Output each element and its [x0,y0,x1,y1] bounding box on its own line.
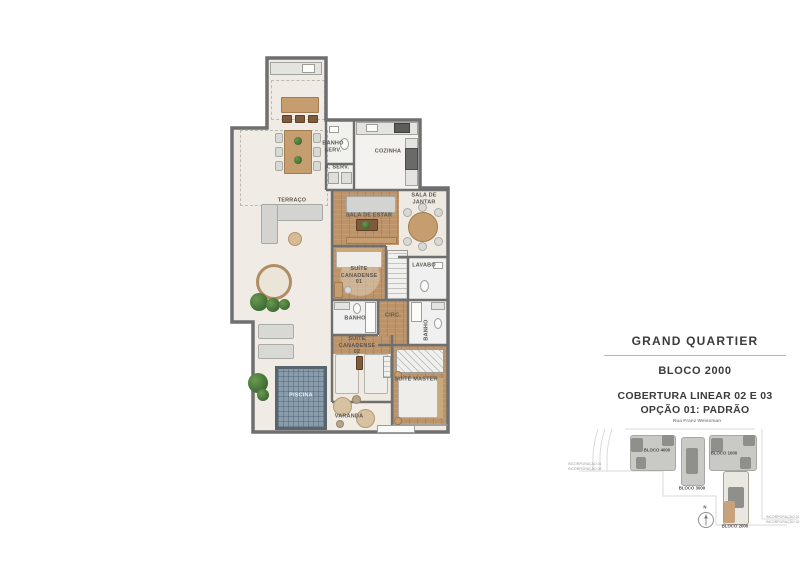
page: TERRAÇO BANHO SERV. COZINHA A. SERV. SAL… [0,0,800,561]
building-core-highlight [724,501,735,523]
table-plant [294,156,302,164]
room-label-a-serv: A. SERV. [325,165,350,172]
room-label-piscina: PISCINA [289,393,313,400]
room-label-suite-master: SUÍTE MASTER [394,377,437,384]
headboard-suite-01 [336,248,382,252]
dining-chair [434,237,443,246]
dining-chair [275,147,283,157]
gourmet-sink [302,64,315,73]
building-label-bloco-4000: BLOCO 4000 [644,449,670,453]
dining-chair [434,208,443,217]
room-label-terraco: TERRAÇO [278,198,307,205]
varanda-side-table [336,420,344,428]
title-block: GRAND QUARTIER BLOCO 2000 COBERTURA LINE… [598,334,792,417]
toilet-banho-02 [434,318,442,329]
room-label-banho-01: BANHO [344,316,365,323]
north-label: N [703,506,706,510]
washer [328,172,339,184]
dining-chair [418,242,427,251]
building-core [631,438,643,452]
kitchen-sink [366,124,378,132]
room-label-banho-serv: BANHO SERV. [322,140,344,153]
room-label-banho-02: BANHO [424,319,431,340]
varanda-side-table [352,395,361,404]
room-label-circ: CIRC. [385,313,401,320]
bed-suite-master [398,378,438,418]
bar-table [281,97,319,113]
bar-stool [282,115,292,123]
project-title: GRAND QUARTIER [598,334,792,348]
headboard-suite-master [438,378,443,418]
room-label-suite-01: SUÍTE CANADENSE 01 [338,266,380,286]
building-core [636,457,646,469]
sink-banho-serv [329,126,339,133]
terrace-plant [266,298,280,312]
master-window-box [377,425,415,433]
dining-chair [313,147,321,157]
dining-chair [403,237,412,246]
incorporation-notes-right: INCORPORAÇÃO 01 INCORPORAÇÃO 02 [766,515,799,525]
coffee-table-plant [362,221,370,229]
room-label-sala-jantar: SALA DE JANTAR [410,192,438,205]
sun-lounger [258,344,294,359]
bar-stool [308,115,318,123]
room-label-lavabo: LAVABO [412,263,436,270]
dining-chair [313,161,321,171]
terrace-plant [279,299,290,310]
closet-suite-master [396,349,444,373]
desk-chair [344,286,352,294]
oven-stack [405,148,418,170]
building-label-bloco-2000: BLOCO 2000 [722,525,748,529]
toilet-lavabo [420,280,429,292]
dining-chair [275,133,283,143]
dining-chair [403,208,412,217]
dining-chair [313,133,321,143]
building-label-bloco-1000: BLOCO 1000 [711,452,737,456]
incorporation-note: INCORPORAÇÃO 02 [568,467,601,472]
pool-plant [257,389,269,401]
stairs [387,250,408,300]
block-title: BLOCO 2000 [598,365,792,377]
north-arrow [698,512,714,528]
sun-lounger [258,324,294,339]
room-label-suite-02: SUÍTE CANADENSE 02 [335,336,379,356]
shower-banho-01 [365,302,376,333]
room-label-sala-estar: SALA DE ESTAR [346,213,392,220]
nightstand-suite-02 [356,356,363,370]
ottoman [288,232,302,246]
stove-icon [394,123,410,133]
nightstand-master [394,417,402,425]
terrace-sofa-vertical [261,204,278,244]
room-label-varanda: VARANDA [335,414,364,421]
laundry-tank [341,172,352,184]
table-plant [294,137,302,145]
bar-stool [295,115,305,123]
closet-suite-02 [383,356,391,378]
dining-chair [275,161,283,171]
vanity-banho-01 [334,302,350,310]
building-bloco-2000-highlighted [723,471,749,525]
building-core [740,457,751,469]
building-label-bloco-3000: BLOCO 3000 [679,487,705,491]
building-core [743,435,755,446]
room-label-cozinha: COZINHA [375,149,401,156]
incorporation-note: INCORPORAÇÃO 02 [766,520,799,525]
plan-subtitle-line1: COBERTURA LINEAR 02 E 03 [598,390,792,404]
tv-cabinet [346,237,397,244]
shower-banho-02 [411,302,422,322]
toilet-banho-01 [353,303,361,314]
dining-round-table [408,212,438,242]
building-core [662,435,674,446]
building-core [711,438,723,452]
living-sofa [346,196,396,213]
incorporation-notes-left: INCORPORAÇÃO 01 INCORPORAÇÃO 02 [568,462,601,472]
title-divider [604,355,786,356]
north-needle [699,513,713,527]
building-core [686,448,698,474]
vanity-banho-02 [431,302,445,310]
building-bloco-3000 [681,437,705,486]
